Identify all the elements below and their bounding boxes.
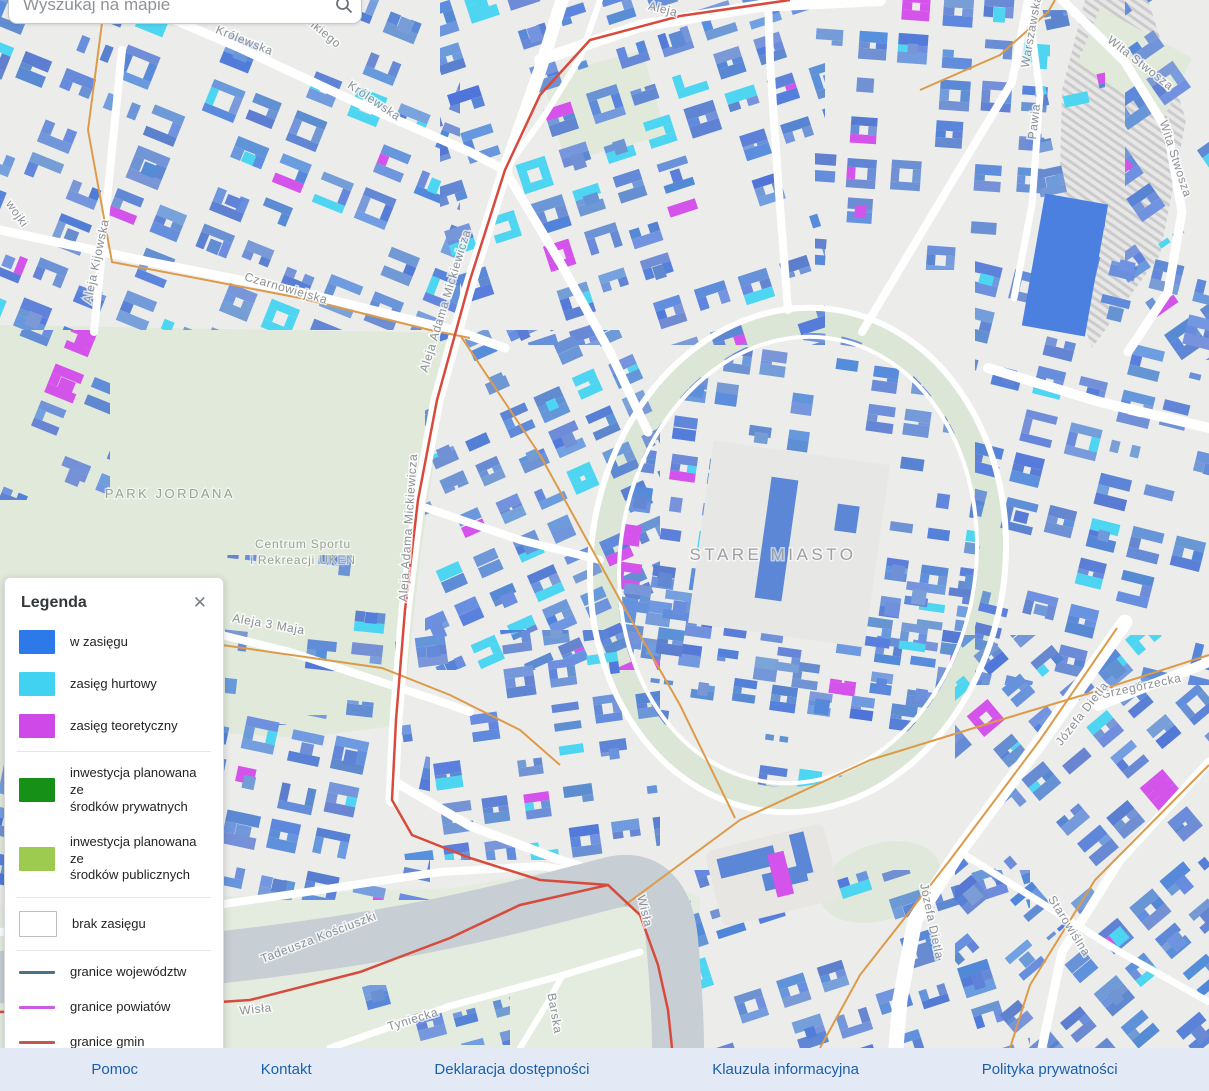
map-search-box — [8, 0, 362, 24]
map-label: i Rekreacji UKEN — [250, 553, 356, 567]
legend-item: brak zasięgu — [5, 902, 223, 946]
legend-item-label: w zasięgu — [70, 634, 128, 651]
legend-item: inwestycja planowana ze środków publiczn… — [5, 825, 223, 894]
map-label: Centrum Sportu — [255, 537, 351, 551]
legend-line-swatch — [19, 971, 55, 974]
legend-line-swatch — [19, 1006, 55, 1009]
map-label: STARE MIASTO — [689, 545, 856, 564]
legend-separator — [17, 751, 211, 752]
legend-color-swatch — [19, 630, 55, 654]
legend-separator — [17, 950, 211, 951]
footer-link-polityka[interactable]: Polityka prywatności — [982, 1061, 1118, 1078]
search-input[interactable] — [9, 0, 327, 15]
legend-item: w zasięgu — [5, 621, 223, 663]
legend-item: granice województw — [5, 955, 223, 990]
map-label: PARK JORDANA — [105, 486, 235, 501]
legend-item-label: inwestycja planowana ze środków prywatny… — [70, 765, 211, 816]
legend-separator — [17, 897, 211, 898]
footer-link-kontakt[interactable]: Kontakt — [261, 1061, 312, 1078]
legend-item-label: zasięg hurtowy — [70, 676, 157, 693]
legend-panel: Legenda ✕ w zasięguzasięg hurtowyzasięg … — [4, 577, 224, 1091]
coverage-map-app: KrólewskaKrólewskaWielkiegoAlejaAleja Ki… — [0, 0, 1209, 1091]
legend-color-swatch — [19, 847, 55, 871]
legend-item: zasięg hurtowy — [5, 663, 223, 705]
footer-link-deklaracja[interactable]: Deklaracja dostępności — [434, 1061, 589, 1078]
legend-item: inwestycja planowana ze środków prywatny… — [5, 756, 223, 825]
footer-bar: Pomoc Kontakt Deklaracja dostępności Kla… — [0, 1048, 1209, 1091]
legend-item-label: zasięg teoretyczny — [70, 718, 178, 735]
footer-link-klauzula[interactable]: Klauzula informacyjna — [712, 1061, 859, 1078]
legend-item-label: granice województw — [70, 964, 186, 981]
legend-color-swatch — [19, 778, 55, 802]
legend-item-label: granice powiatów — [70, 999, 170, 1016]
legend-item: granice powiatów — [5, 990, 223, 1025]
legend-color-swatch — [19, 672, 55, 696]
legend-item: zasięg teoretyczny — [5, 705, 223, 747]
legend-color-swatch — [19, 911, 57, 937]
legend-header: Legenda ✕ — [5, 590, 223, 621]
footer-link-pomoc[interactable]: Pomoc — [91, 1061, 138, 1078]
legend-item-label: brak zasięgu — [72, 916, 146, 933]
legend-title: Legenda — [21, 594, 87, 612]
legend-line-swatch — [19, 1041, 55, 1044]
legend-close-icon[interactable]: ✕ — [189, 592, 211, 613]
legend-color-swatch — [19, 714, 55, 738]
legend-item-label: inwestycja planowana ze środków publiczn… — [70, 834, 211, 885]
legend-items: w zasięguzasięg hurtowyzasięg teoretyczn… — [5, 621, 223, 1091]
search-icon[interactable] — [327, 0, 361, 22]
